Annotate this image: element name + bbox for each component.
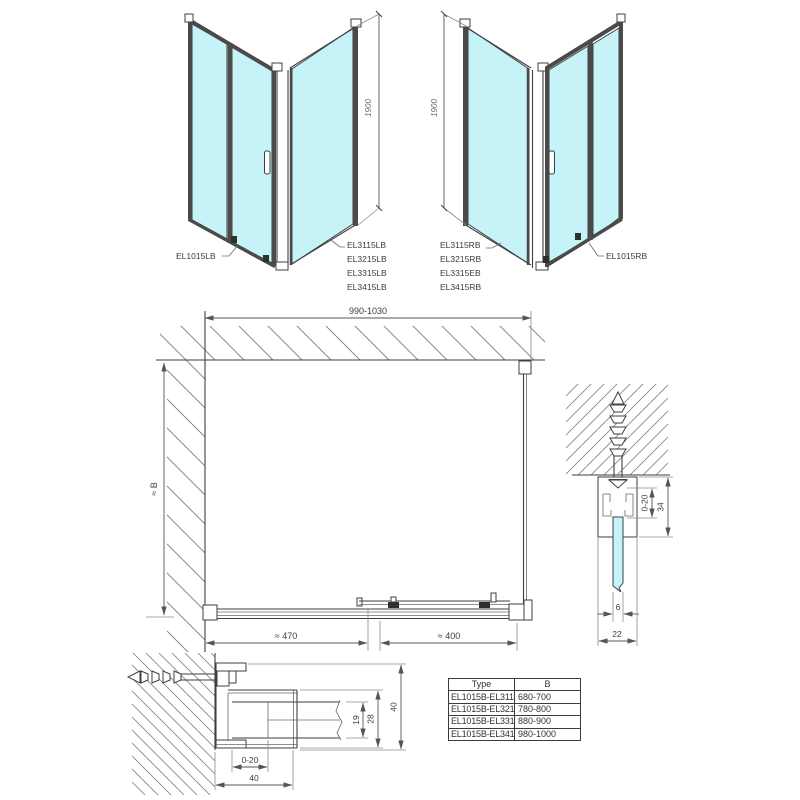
wall-profile-detail: 0-20 34 6 22 xyxy=(566,384,673,646)
panel-model-label: EL3315EB xyxy=(440,268,481,278)
wall-hatch-left xyxy=(167,360,205,652)
dimension-height-right: 1900 xyxy=(430,14,466,225)
door-handle xyxy=(265,151,271,174)
roller-pin xyxy=(391,597,396,602)
door-roller xyxy=(575,233,581,240)
panel-model-label: EL3115RB xyxy=(440,240,481,250)
type-cell: EL1015B-EL3415B xyxy=(449,728,515,740)
door-handle xyxy=(549,151,555,174)
panel-model-label: EL3315LB xyxy=(347,268,387,278)
height-dim-value: 1900 xyxy=(364,99,373,117)
panel-model-label: EL3215RB xyxy=(440,254,481,264)
roller-pin xyxy=(491,593,496,602)
glass-panel xyxy=(613,517,623,592)
roller-carriage xyxy=(479,602,490,608)
corner-post-cap xyxy=(272,63,282,71)
wall-profile-cap xyxy=(617,14,625,22)
figure-enclosure-left: 1900 EL1015LB EL3115LB EL3215LB EL3315LB… xyxy=(176,14,387,292)
body-dim-value: 28 xyxy=(366,714,376,724)
b-cell: 680-700 xyxy=(515,691,581,703)
profile-width-dim-value: 22 xyxy=(612,629,622,639)
roller-carriage xyxy=(388,602,399,608)
panel-model-label: EL3215LB xyxy=(347,254,387,264)
profile-height-dim-value: 34 xyxy=(656,502,666,512)
adjust-dim-value: 0-20 xyxy=(241,755,258,765)
technical-drawing-sheet: 1900 EL1015LB EL3115LB EL3215LB EL3315LB… xyxy=(0,0,800,800)
side-panel-glass xyxy=(292,28,353,264)
door-glass-pane-fixed xyxy=(593,28,619,238)
height-dim-value: 1900 xyxy=(430,99,439,117)
wall-bracket xyxy=(519,361,531,374)
corner-bracket xyxy=(524,600,532,620)
depth-dim-value: ≈ B xyxy=(149,482,159,495)
table-row: EL1015B-EL3415B 980-1000 xyxy=(449,728,581,740)
type-cell: EL1015B-EL3215B xyxy=(449,703,515,715)
size-table: Type B EL1015B-EL3115B 680-700 EL1015B-E… xyxy=(448,678,581,741)
dimension-height-left: 1900 xyxy=(357,14,379,226)
dimension-door-segments: ≈ 470 ≈ 400 xyxy=(206,608,517,651)
door-roller xyxy=(543,256,549,263)
col-header-type: Type xyxy=(449,679,515,691)
door-model-label: EL1015RB xyxy=(606,251,647,261)
right-segment-dim-value: ≈ 400 xyxy=(438,631,460,641)
adjust-dim-value: 0-20 xyxy=(640,494,650,511)
plan-view: 990-1030 ≈ B xyxy=(146,306,545,652)
track-end-cap xyxy=(203,605,217,620)
col-header-b: B xyxy=(515,679,581,691)
left-segment-dim-value: ≈ 470 xyxy=(275,631,297,641)
corner-bottom-bracket xyxy=(276,262,288,270)
leader-line xyxy=(331,240,345,247)
type-cell: EL1015B-EL3315B xyxy=(449,716,515,728)
table-row: EL1015B-EL3215B 780-800 xyxy=(449,703,581,715)
panel-model-label: EL3115LB xyxy=(347,240,386,250)
type-cell: EL1015B-EL3115B xyxy=(449,691,515,703)
table-row: EL1015B-EL3115B 680-700 xyxy=(449,691,581,703)
b-cell: 880-900 xyxy=(515,716,581,728)
wall-hatch-top xyxy=(160,326,545,360)
total-dim-value: 40 xyxy=(389,702,399,712)
door-glass-pane-fixed xyxy=(192,24,227,240)
width-dim-value: 990-1030 xyxy=(349,306,387,316)
leader-line xyxy=(589,243,604,256)
panel-model-label: EL3415RB xyxy=(440,282,481,292)
screw-head xyxy=(229,671,236,683)
wall-profile-lip-top xyxy=(216,663,246,671)
door-track-assembly xyxy=(203,593,532,620)
drawing-canvas: 1900 EL1015LB EL3115LB EL3215LB EL3315LB… xyxy=(0,0,800,800)
panel-model-label: EL3415LB xyxy=(347,282,387,292)
side-panel-glass xyxy=(468,28,529,264)
figure-enclosure-right: 1900 EL3115RB EL3215RB EL3315EB EL3415RB… xyxy=(430,14,647,292)
pocket-dim-value: 19 xyxy=(351,715,361,725)
wall-profile-cap xyxy=(185,14,193,22)
b-cell: 780-800 xyxy=(515,703,581,715)
wall-profile-lip-bottom xyxy=(216,740,246,748)
glass-thickness-dim-value: 6 xyxy=(616,602,621,612)
wall-profile-cap xyxy=(351,19,361,27)
floor-profile-detail: 0-20 40 19 28 40 xyxy=(128,653,406,795)
door-roller xyxy=(231,236,237,243)
door-model-label: EL1015LB xyxy=(176,251,216,261)
table-row: EL1015B-EL3315B 880-900 xyxy=(449,716,581,728)
b-cell: 980-1000 xyxy=(515,728,581,740)
detail-dimensions: 0-20 40 19 28 40 xyxy=(215,664,406,790)
table-header-row: Type B xyxy=(449,679,581,691)
door-roller xyxy=(263,255,269,262)
adjust-total-dim-value: 40 xyxy=(249,773,259,783)
